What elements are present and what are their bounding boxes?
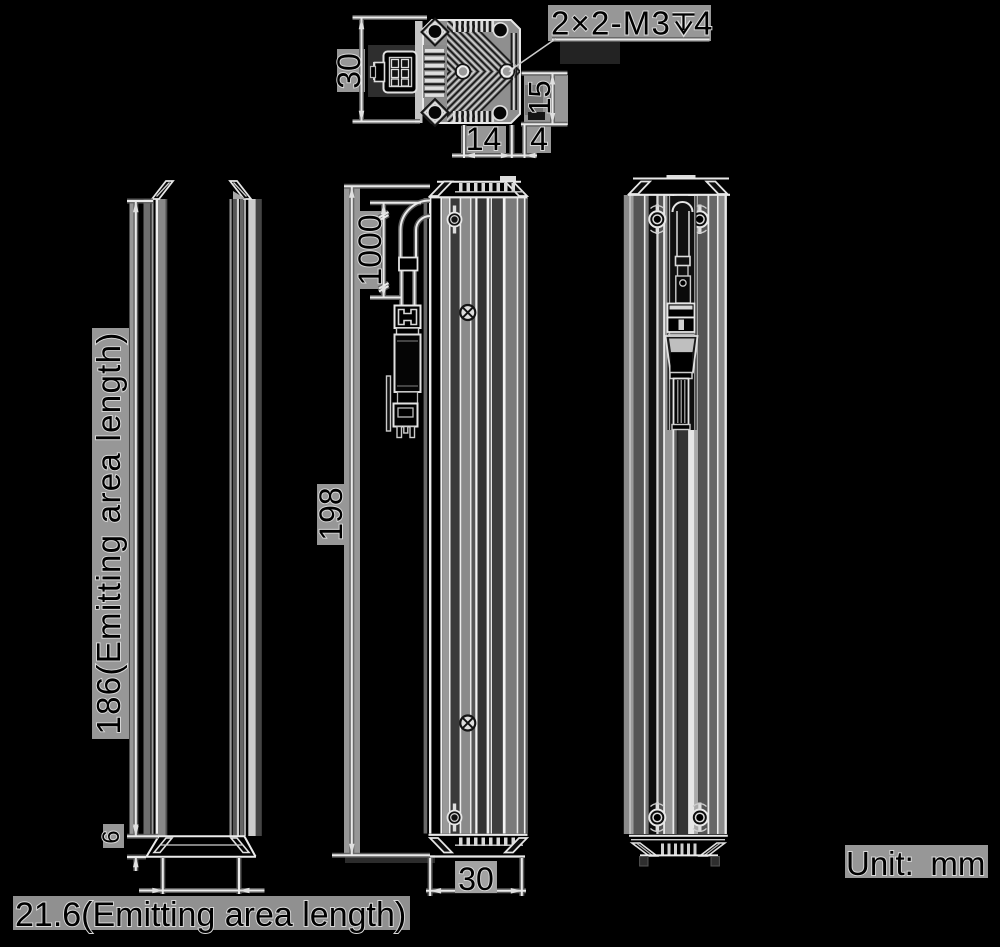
svg-text:30: 30	[458, 861, 494, 897]
svg-text:4: 4	[530, 121, 548, 157]
svg-text:21.6(Emitting area length): 21.6(Emitting area length)	[15, 896, 406, 934]
svg-text:1000: 1000	[352, 214, 388, 285]
svg-text:198: 198	[313, 487, 349, 540]
svg-text:6: 6	[98, 830, 125, 843]
svg-text:14: 14	[466, 121, 502, 157]
svg-text:186(Emitting area length): 186(Emitting area length)	[90, 331, 127, 734]
svg-text:2×2-M3: 2×2-M3	[551, 5, 671, 42]
svg-text:15: 15	[522, 80, 557, 114]
svg-text:Unit: mm: Unit: mm	[846, 845, 985, 882]
svg-text:30: 30	[331, 53, 367, 89]
svg-text:4: 4	[694, 5, 712, 42]
